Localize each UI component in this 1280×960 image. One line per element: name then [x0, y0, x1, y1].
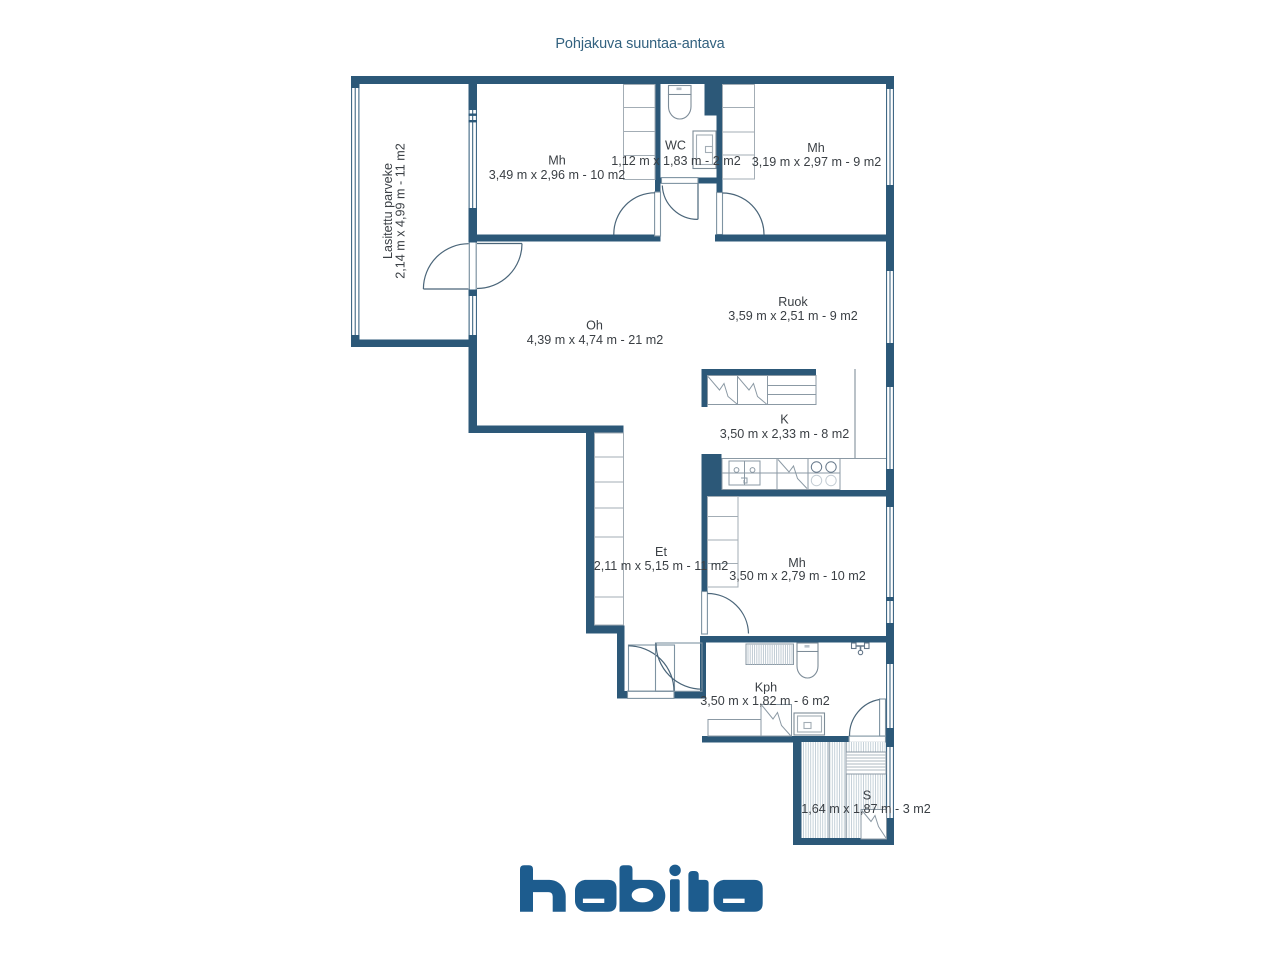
- svg-text:Mh: Mh: [548, 154, 566, 168]
- svg-text:Mh: Mh: [807, 141, 825, 155]
- svg-text:Mh: Mh: [788, 556, 806, 570]
- svg-text:Oh: Oh: [586, 319, 603, 333]
- svg-text:S: S: [863, 789, 871, 803]
- svg-text:Ruok: Ruok: [778, 295, 808, 309]
- svg-text:K: K: [780, 413, 789, 427]
- svg-text:2,11 m x 5,15 m - 11 m2: 2,11 m x 5,15 m - 11 m2: [594, 559, 729, 573]
- svg-text:3,49 m x 2,96 m - 10 m2: 3,49 m x 2,96 m - 10 m2: [489, 168, 626, 182]
- svg-text:2,14 m x 4,99 m - 11 m2: 2,14 m x 4,99 m - 11 m2: [394, 143, 408, 279]
- svg-text:3,50 m x 2,33 m - 8 m2: 3,50 m x 2,33 m - 8 m2: [720, 427, 850, 441]
- svg-text:Et: Et: [655, 545, 667, 559]
- svg-text:3,59 m x 2,51 m - 9 m2: 3,59 m x 2,51 m - 9 m2: [728, 309, 858, 323]
- svg-text:WC: WC: [665, 139, 686, 153]
- svg-text:4,39 m x 4,74 m - 21 m2: 4,39 m x 4,74 m - 21 m2: [527, 333, 664, 347]
- svg-text:3,50 m x 1,82 m - 6 m2: 3,50 m x 1,82 m - 6 m2: [700, 694, 830, 708]
- svg-text:3,50 m x 2,79 m - 10 m2: 3,50 m x 2,79 m - 10 m2: [729, 569, 866, 583]
- svg-text:3,19 m x 2,97 m - 9 m2: 3,19 m x 2,97 m - 9 m2: [752, 155, 882, 169]
- svg-text:1,12 m x 1,83 m - 2 m2: 1,12 m x 1,83 m - 2 m2: [611, 154, 741, 168]
- svg-text:Kph: Kph: [755, 681, 777, 695]
- svg-text:1,64 m x 1,87 m - 3 m2: 1,64 m x 1,87 m - 3 m2: [801, 802, 931, 816]
- svg-text:Pohjakuva suuntaa-antava: Pohjakuva suuntaa-antava: [555, 36, 725, 52]
